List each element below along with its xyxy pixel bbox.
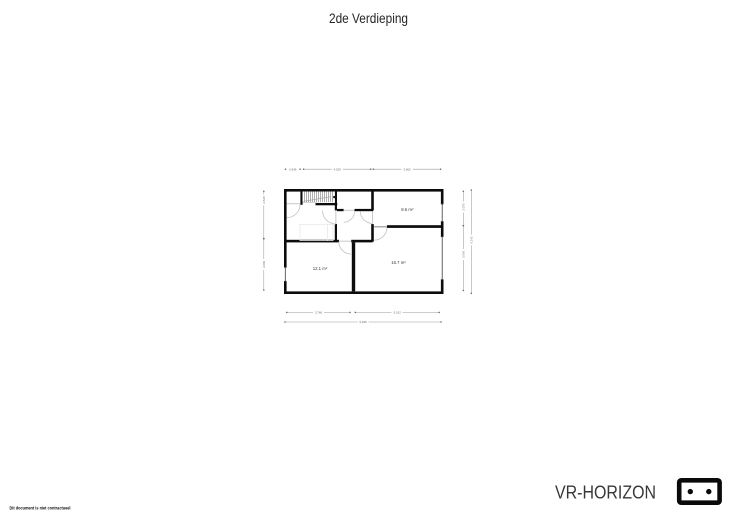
- svg-text:9.298: 9.298: [359, 320, 367, 324]
- svg-text:16.7 m²: 16.7 m²: [391, 260, 406, 265]
- svg-text:3.960: 3.960: [403, 167, 411, 171]
- svg-text:2.828: 2.828: [262, 196, 266, 204]
- svg-text:2.075: 2.075: [461, 203, 465, 211]
- svg-text:Dit document is niet contractu: Dit document is niet contractueel: [10, 506, 71, 511]
- svg-text:VR-HORIZON: VR-HORIZON: [555, 482, 656, 502]
- svg-text:3.566: 3.566: [461, 250, 465, 258]
- svg-text:3.060: 3.060: [262, 260, 266, 268]
- svg-text:8.6 m²: 8.6 m²: [401, 207, 414, 212]
- svg-text:2de Verdieping: 2de Verdieping: [329, 10, 408, 26]
- svg-text:0.945: 0.945: [289, 167, 297, 171]
- svg-text:5.012: 5.012: [394, 311, 402, 315]
- svg-text:6.142: 6.142: [469, 236, 473, 244]
- svg-text:12.1 m²: 12.1 m²: [313, 266, 328, 271]
- svg-text:4.025: 4.025: [334, 167, 342, 171]
- svg-text:3.766: 3.766: [315, 311, 323, 315]
